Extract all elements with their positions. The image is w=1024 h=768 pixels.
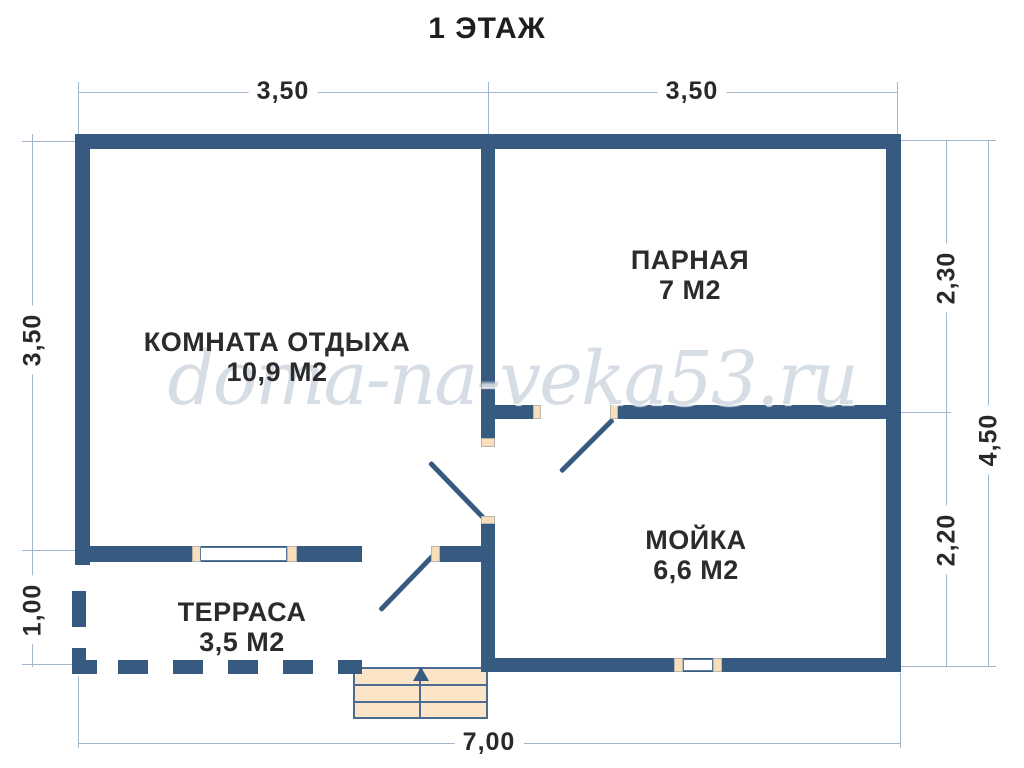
stairs	[353, 667, 488, 719]
room-name: ТЕРРАСА	[178, 598, 307, 628]
wall-bottom-left-stub	[440, 546, 481, 562]
ext-line	[22, 664, 75, 665]
dim-label-right-upper: 2,30	[933, 244, 962, 313]
ext-line	[78, 82, 79, 134]
door-swing-rest-room	[428, 461, 486, 521]
room-label-terrace: ТЕРРАСА 3,5 М2	[178, 598, 307, 657]
room-area: 6,6 М2	[645, 556, 746, 586]
ext-line	[901, 140, 996, 141]
ext-line	[22, 550, 75, 551]
room-name: КОМНАТА ОТДЫХА	[144, 328, 410, 358]
dim-label-top-left: 3,50	[249, 77, 318, 106]
ext-line	[78, 676, 79, 748]
terrace-dash-bottom-5	[338, 660, 362, 674]
room-area: 3,5 М2	[178, 628, 307, 658]
dim-label-top-right: 3,50	[658, 77, 727, 106]
wall-right	[886, 134, 901, 672]
window-rest-room	[200, 547, 287, 561]
door-swing-entry	[378, 550, 439, 612]
room-name: МОЙКА	[645, 526, 746, 556]
jamb-sauna-door-left	[533, 405, 541, 419]
terrace-dash-bottom-2	[173, 660, 203, 674]
ext-line	[901, 666, 996, 667]
room-name: ПАРНАЯ	[631, 246, 749, 276]
ext-line	[901, 412, 951, 413]
ext-line	[900, 673, 901, 748]
jamb-room-door-bottom	[481, 516, 495, 524]
floor-plan: 1 ЭТАЖ	[0, 0, 1024, 768]
jamb-window-wash-a	[674, 658, 683, 672]
room-label-rest-room: КОМНАТА ОТДЫХА 10,9 М2	[144, 328, 410, 387]
jamb-window-left-b	[287, 546, 297, 562]
dim-label-right-lower: 2,20	[933, 506, 962, 575]
dim-label-left-lower: 1,00	[19, 576, 48, 645]
wall-divider-horizontal-main	[618, 405, 886, 419]
window-wash-room	[683, 659, 713, 671]
terrace-dash-bottom-4	[283, 660, 313, 674]
dim-label-bottom: 7,00	[455, 728, 524, 757]
jamb-room-door-top	[481, 438, 495, 447]
wall-left	[75, 134, 90, 565]
jamb-entry-door	[431, 546, 440, 562]
room-label-wash-room: МОЙКА 6,6 М2	[645, 526, 746, 585]
room-label-sauna: ПАРНАЯ 7 М2	[631, 246, 749, 305]
terrace-dash-corner-h	[72, 660, 97, 674]
terrace-dash-left	[72, 591, 86, 627]
jamb-sauna-door-right	[610, 405, 618, 419]
dim-line-right-total	[988, 140, 989, 667]
dim-label-left-upper: 3,50	[19, 306, 48, 375]
dim-label-right-total: 4,50	[975, 406, 1004, 475]
ext-line	[897, 82, 898, 134]
wall-divider-horizontal-stub	[495, 405, 533, 419]
jamb-window-wash-b	[713, 658, 722, 672]
door-swing-sauna	[559, 418, 615, 474]
wall-divider-vertical-upper	[481, 134, 495, 438]
terrace-dash-bottom-1	[118, 660, 148, 674]
room-area: 7 М2	[631, 276, 749, 306]
terrace-dash-bottom-3	[228, 660, 258, 674]
room-area: 10,9 М2	[144, 358, 410, 388]
wall-divider-vertical-lower	[481, 523, 495, 658]
ext-line	[22, 141, 75, 142]
ext-line	[488, 82, 489, 134]
page-title: 1 ЭТАЖ	[372, 12, 602, 46]
stairs-up-arrow-icon	[413, 667, 429, 681]
